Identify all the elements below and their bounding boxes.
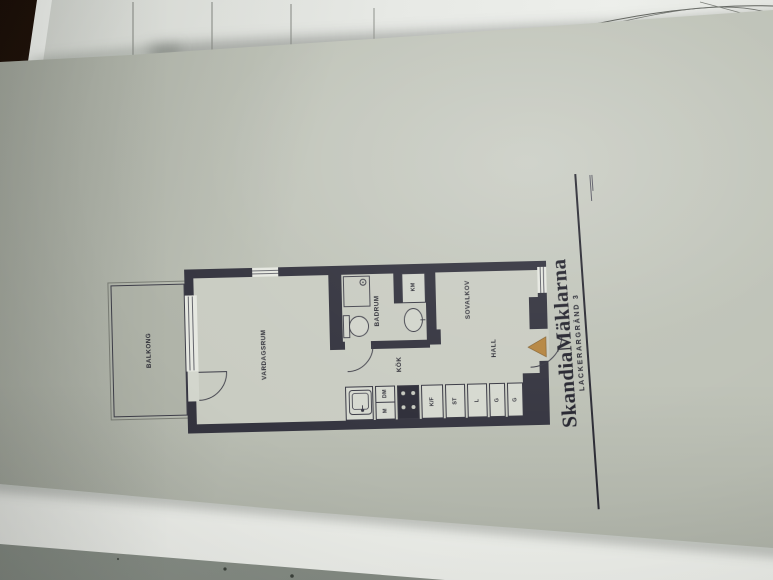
- unit-label-g2: G: [512, 397, 518, 402]
- window-lines: [540, 267, 544, 293]
- unit-label-st: ST: [452, 397, 458, 404]
- unit-label-m: M: [383, 408, 389, 413]
- toilet-tank: [343, 316, 350, 338]
- room-label-balkong: BALKONG: [145, 333, 153, 369]
- unit-label-km: KM: [410, 283, 416, 292]
- photo-of-floor-plan: BALKONG VARDAGSRUM BADRUM KÖK SOVALKOV H…: [0, 0, 773, 580]
- burner: [401, 405, 405, 409]
- shower: [343, 276, 370, 307]
- window-lines: [188, 296, 194, 370]
- burner: [411, 391, 415, 395]
- kitchen-sink-basin: [352, 393, 368, 409]
- burner: [401, 391, 405, 395]
- door-arc-balcony: [199, 372, 228, 401]
- unit-label-dm: DM: [382, 389, 388, 398]
- floor-plan: BALKONG VARDAGSRUM BADRUM KÖK SOVALKOV H…: [106, 251, 560, 442]
- fine-print-illegible: [587, 175, 598, 215]
- burner: [411, 405, 415, 409]
- unit-label-l: L: [474, 399, 480, 403]
- room-label-hall: HALL: [490, 339, 497, 358]
- unit-label-kf: K/F: [429, 397, 435, 406]
- speck: [290, 574, 294, 578]
- speck: [223, 567, 226, 570]
- unit-label-g1: G: [494, 398, 500, 403]
- room-label-sovalkov: SOVALKOV: [464, 280, 472, 319]
- door-arc-bathroom: [347, 345, 374, 372]
- window-lines: [252, 270, 278, 274]
- washbasin: [404, 308, 423, 331]
- toilet-bowl: [349, 316, 368, 336]
- entrance-arrow: [528, 337, 546, 357]
- room-label-vardagsrum: VARDAGSRUM: [260, 329, 268, 380]
- room-label-badrum: BADRUM: [373, 295, 381, 326]
- fine-print-line: [592, 175, 594, 191]
- speck: [117, 558, 119, 560]
- shower-head-dot: [362, 281, 364, 283]
- room-label-kok: KÖK: [396, 357, 403, 373]
